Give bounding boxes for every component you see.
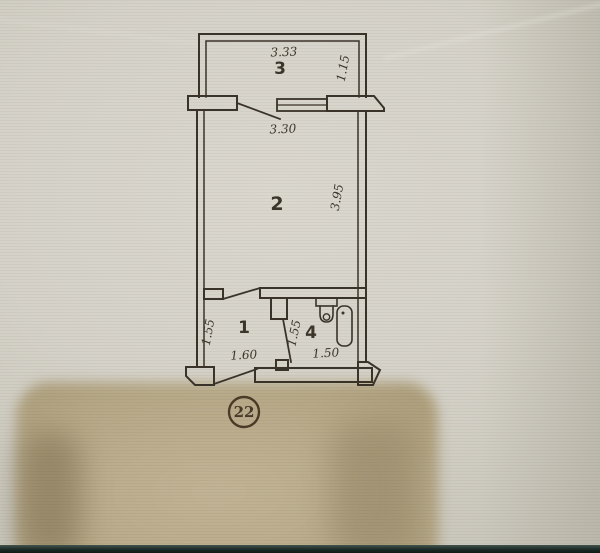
mid-wall xyxy=(260,288,366,298)
balcony-door-leaf xyxy=(237,103,280,119)
balcony-number-label: 3 xyxy=(274,59,286,79)
entry-door-leaf xyxy=(214,369,257,384)
balcony-outer-wall xyxy=(199,34,366,97)
hall-bath-partition xyxy=(271,298,287,319)
living-depth-label: 3.95 xyxy=(328,183,346,212)
paper-texture xyxy=(0,0,600,553)
balcony-depth-label: 1.15 xyxy=(334,54,352,83)
paper-stain xyxy=(16,382,438,553)
hall-number-label: 1 xyxy=(238,318,250,338)
living-number-label: 2 xyxy=(270,193,283,215)
bottom-wall-stub xyxy=(276,360,288,370)
unit-number-label: 22 xyxy=(234,403,255,421)
bath-door-leaf xyxy=(283,319,291,362)
floor-plan-drawing: 3.33 3 1.15 3.30 2 3.95 1.55 1 1.60 1.55… xyxy=(0,0,600,553)
paper-stain-dark-edge xyxy=(18,430,82,553)
living-width-label: 3.30 xyxy=(269,122,297,137)
bath-depth-label: 1.55 xyxy=(284,319,303,348)
living-room-door-leaf xyxy=(223,288,260,299)
paper-stain-dark-edge xyxy=(330,420,420,553)
bath-number-label: 4 xyxy=(305,323,317,343)
hall-depth-label: 1.55 xyxy=(199,318,217,347)
bottom-wall-left-foot xyxy=(186,367,214,385)
wall-pier-left xyxy=(188,96,237,110)
toilet-bowl xyxy=(320,306,333,322)
toilet-tank xyxy=(316,298,337,306)
bathtub xyxy=(337,306,352,346)
balcony-inner-wall xyxy=(206,41,359,97)
mid-wall-left-stub xyxy=(204,289,223,299)
paper-crease xyxy=(0,17,199,45)
window-frame xyxy=(277,99,327,111)
wall-pier-right xyxy=(327,96,384,111)
bath-width-label: 1.50 xyxy=(312,345,340,360)
photo-bottom-edge xyxy=(0,545,600,553)
floor-plan-photo: 3.33 3 1.15 3.30 2 3.95 1.55 1 1.60 1.55… xyxy=(0,0,600,553)
paper-crease xyxy=(383,0,600,60)
bottom-wall xyxy=(255,368,372,382)
bathtub-drain xyxy=(342,312,345,315)
bottom-wall-right-foot xyxy=(358,362,380,385)
toilet-drain xyxy=(323,314,329,320)
paper-shadow-right xyxy=(480,0,600,553)
hall-width-label: 1.60 xyxy=(230,347,258,362)
balcony-width-label: 3.33 xyxy=(270,45,298,60)
unit-number-circle xyxy=(229,397,259,427)
